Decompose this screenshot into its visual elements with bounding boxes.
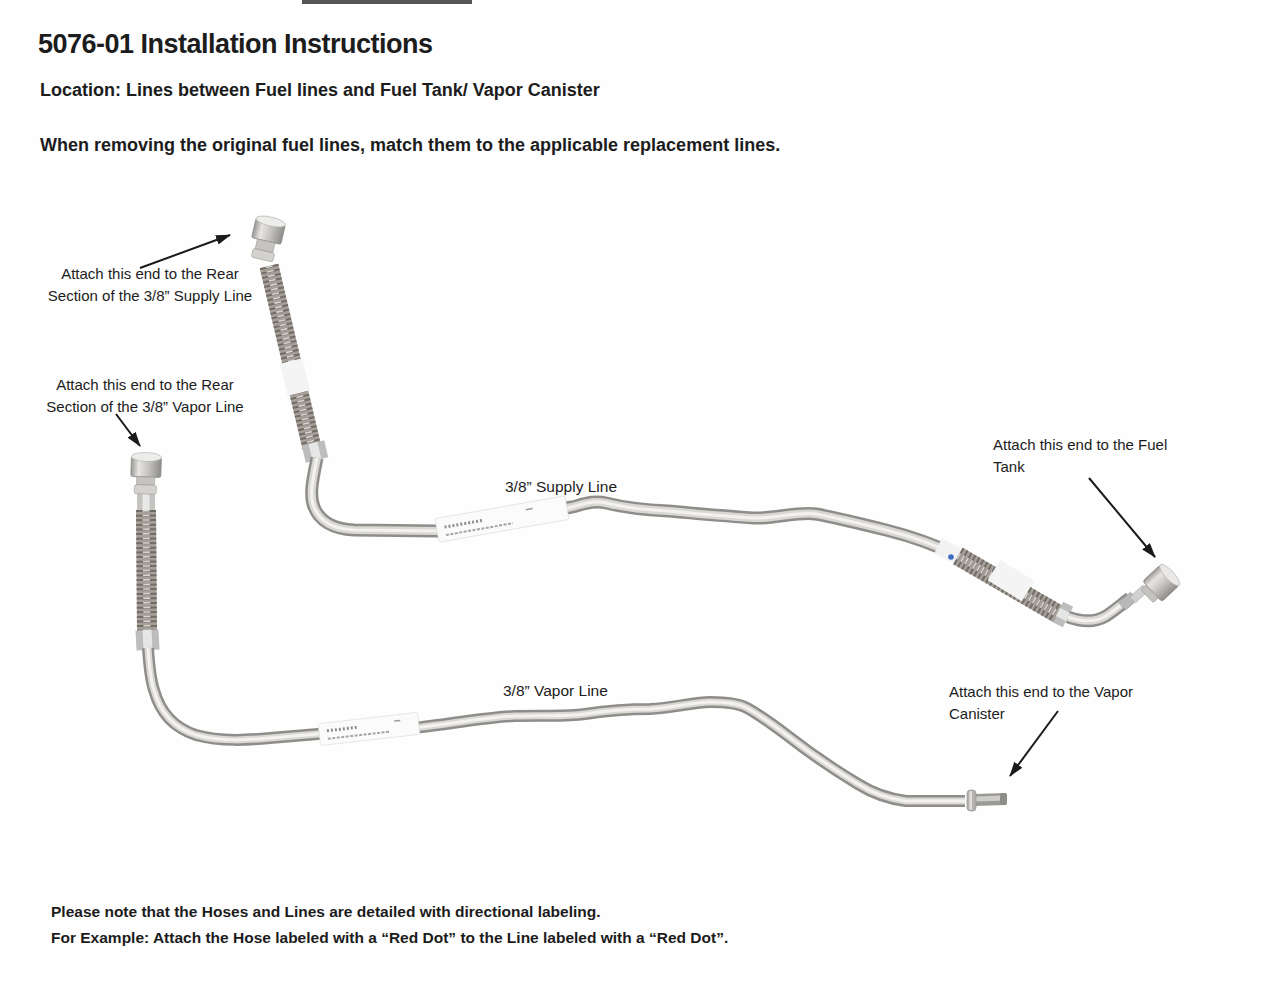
- callout-supply-rear: Attach this end to the Rear Section of t…: [30, 263, 270, 306]
- supply-steel-tube: [312, 458, 958, 556]
- callout-vapor-canister: Attach this end to the Vapor Canister: [949, 681, 1179, 724]
- supply-fitting-rear: [247, 214, 286, 263]
- supply-braided-hose: [269, 266, 312, 448]
- cup-ring: [134, 485, 156, 495]
- footer-note-line: For Example: Attach the Hose labeled wit…: [51, 925, 728, 951]
- blue-dot-marker: [948, 554, 954, 560]
- callout-line: Tank: [993, 456, 1213, 478]
- supply-line-label: 3/8” Supply Line: [505, 478, 617, 496]
- callout-fuel-tank: Attach this end to the Fuel Tank: [993, 434, 1213, 477]
- tip-bead-highlight: [970, 791, 973, 810]
- footer-notes: Please note that the Hoses and Lines are…: [51, 899, 728, 950]
- vapor-braided-hose: [146, 510, 147, 632]
- callout-line: Attach this end to the Vapor: [949, 681, 1179, 703]
- vapor-line-label: 3/8” Vapor Line: [503, 682, 608, 700]
- sticker-body: [435, 496, 569, 543]
- collar-highlight: [147, 630, 148, 650]
- callout-line: Attach this end to the Rear: [30, 263, 270, 285]
- part-label-sticker: [318, 712, 420, 745]
- cup-neck: [136, 477, 154, 486]
- callout-line: Attach this end to the Rear: [25, 374, 265, 396]
- callout-line: Attach this end to the Fuel: [993, 434, 1213, 456]
- tube-mid: [148, 648, 965, 801]
- tip-end-cap: [1000, 793, 1007, 805]
- supply-line-assembly: [247, 214, 1182, 621]
- fuel-lines-photo: [0, 0, 1280, 989]
- sticker-tick-mark: [394, 720, 400, 721]
- vapor-steel-tube: [148, 648, 965, 801]
- callout-vapor-rear: Attach this end to the Rear Section of t…: [25, 374, 265, 417]
- supply-fitting-fuel-tank: [1137, 562, 1182, 607]
- arrow-vapor-rear: [116, 414, 140, 446]
- braid-white-band: [291, 361, 299, 393]
- collar-highlight: [1058, 612, 1068, 617]
- callout-line: Section of the 3/8” Vapor Line: [25, 396, 265, 418]
- tube-highlight: [312, 458, 958, 556]
- callout-line: Canister: [949, 703, 1179, 725]
- part-label-sticker: [435, 496, 569, 543]
- vapor-canister-tip: [967, 790, 1007, 811]
- vapor-fitting-rear: [130, 452, 161, 495]
- callout-line: Section of the 3/8” Supply Line: [30, 285, 270, 307]
- sticker-body: [318, 712, 420, 745]
- footer-note-line: Please note that the Hoses and Lines are…: [51, 899, 728, 925]
- arrow-fuel-tank: [1089, 478, 1155, 557]
- supply-braided-hose-tank-end: [958, 556, 1058, 614]
